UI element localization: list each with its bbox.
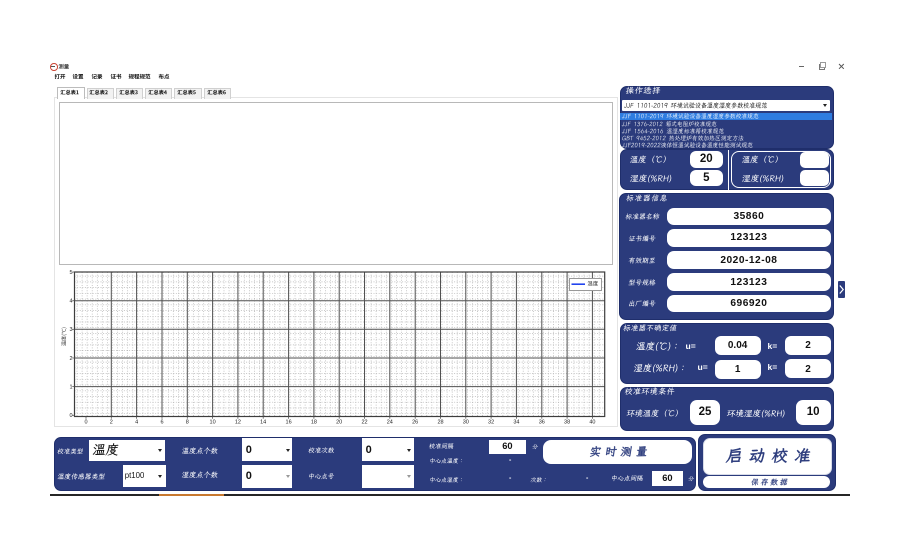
svg-text:22: 22 bbox=[361, 420, 367, 426]
svg-text:2: 2 bbox=[69, 356, 72, 362]
svg-text:0: 0 bbox=[69, 413, 72, 419]
svg-text:0: 0 bbox=[84, 420, 87, 426]
svg-text:32: 32 bbox=[488, 420, 494, 426]
svg-text:4: 4 bbox=[69, 299, 72, 305]
svg-text:36: 36 bbox=[539, 420, 545, 426]
svg-text:24: 24 bbox=[387, 420, 393, 426]
svg-text:8: 8 bbox=[186, 420, 189, 426]
svg-text:3: 3 bbox=[69, 327, 72, 333]
svg-text:6: 6 bbox=[160, 420, 163, 426]
svg-text:28: 28 bbox=[437, 420, 443, 426]
svg-text:14: 14 bbox=[260, 420, 266, 426]
svg-text:34: 34 bbox=[513, 420, 519, 426]
svg-text:1: 1 bbox=[69, 385, 72, 391]
svg-text:40: 40 bbox=[589, 420, 595, 426]
svg-text:20: 20 bbox=[336, 420, 342, 426]
svg-text:12: 12 bbox=[235, 420, 241, 426]
svg-text:2: 2 bbox=[110, 420, 113, 426]
svg-text:5: 5 bbox=[69, 270, 72, 276]
svg-text:18: 18 bbox=[311, 420, 317, 426]
svg-text:30: 30 bbox=[463, 420, 469, 426]
svg-text:26: 26 bbox=[412, 420, 418, 426]
svg-text:10: 10 bbox=[210, 420, 216, 426]
svg-text:4: 4 bbox=[135, 420, 138, 426]
svg-text:16: 16 bbox=[286, 420, 292, 426]
svg-text:38: 38 bbox=[564, 420, 570, 426]
